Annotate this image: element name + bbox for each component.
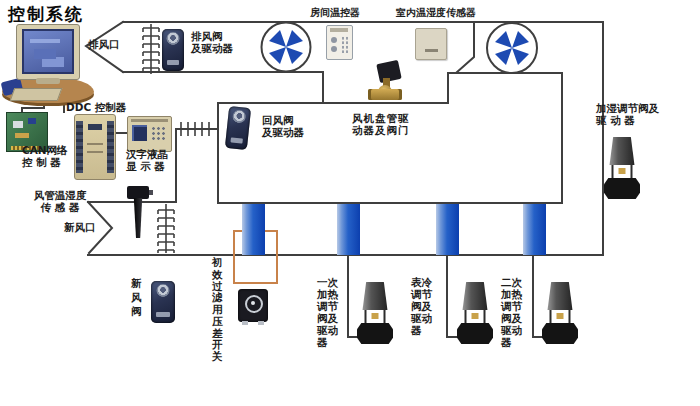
duct-piping-lines xyxy=(0,0,700,406)
indoor-sensor-device xyxy=(415,28,447,60)
label-primary-heating-valve: 一次加热调节阀及驱动器 xyxy=(317,277,340,349)
label-fan-coil-valve: 风机盘管驱 动器及阀门 xyxy=(352,112,420,137)
secondary-heating-valve-device xyxy=(542,282,578,345)
label-duct-sensor: 风管温湿度 传 感 器 xyxy=(30,189,90,214)
primary-heating-valve-device xyxy=(357,282,393,345)
coil-bar-2 xyxy=(337,204,360,255)
room-thermostat-device xyxy=(326,25,353,60)
label-fresh-air-vent: 新风口 xyxy=(64,221,96,233)
coil-bar-3 xyxy=(436,204,459,255)
ddc-controller-device xyxy=(74,114,116,180)
coil-bar-4 xyxy=(523,204,546,255)
room-duct-transition xyxy=(457,23,474,72)
coil-bar-1 xyxy=(242,204,265,255)
label-filter-pressure-switch: 初效过滤用压差开关 xyxy=(212,257,225,363)
page-title: 控制系统 xyxy=(8,4,84,24)
exhaust-fan-icon xyxy=(262,23,311,72)
humidifier-valve-device xyxy=(604,137,640,200)
label-fresh-air-damper: 新风阀 xyxy=(131,276,144,319)
fan-coil-valve-device xyxy=(366,62,404,110)
label-can-controller: CAN网络 控 制 器 xyxy=(22,144,70,169)
label-lcd-display: 汉字液晶 显 示 器 xyxy=(126,148,176,173)
label-indoor-sensor: 室内温湿度传感器 xyxy=(396,7,476,19)
monitor-base xyxy=(36,78,60,84)
fresh-air-damper-actuator-device xyxy=(151,281,175,323)
keyboard xyxy=(10,88,63,101)
pressure-switch-device xyxy=(238,289,268,322)
label-cooling-coil-valve: 表冷调节阀及驱动器 xyxy=(411,277,434,337)
label-room-thermostat: 房间温控器 xyxy=(310,7,360,19)
duct-sensor-probe xyxy=(127,186,153,239)
fan1-lower-duct-line xyxy=(123,72,323,103)
label-exhaust-vent: 排风口 xyxy=(88,38,120,50)
label-ddc-controller: DDC 控制器 xyxy=(66,101,126,113)
label-return-damper: 回风阀 及驱动器 xyxy=(262,114,312,139)
actuator-knob-icon xyxy=(167,32,180,45)
crt-monitor xyxy=(16,24,80,80)
label-exhaust-damper: 排风阀 及驱动器 xyxy=(191,30,241,55)
exhaust-damper-actuator-device xyxy=(162,29,184,71)
actuator-knob-icon xyxy=(232,109,246,123)
label-humidifier-valve: 加湿调节阀及 驱 动 器 xyxy=(596,102,662,127)
supply-fan-icon xyxy=(487,23,537,73)
actuator-knob-icon xyxy=(157,284,170,297)
return-damper-actuator-device xyxy=(225,106,251,150)
fresh-air-louver-icon xyxy=(158,204,174,253)
cooling-coil-valve-device xyxy=(457,282,493,345)
label-secondary-heating-valve: 二次加热调节阀及驱动器 xyxy=(501,277,524,349)
hvac-control-system-diagram: 控制系统 排风口 排风阀 及驱动器 房间温控器 室内温湿度传感器 DDC 控制器… xyxy=(0,0,700,406)
lcd-display-device xyxy=(127,116,172,152)
exhaust-louver-icon xyxy=(143,24,159,74)
flex-connector-line xyxy=(176,129,218,202)
monitor-screen xyxy=(22,29,74,74)
